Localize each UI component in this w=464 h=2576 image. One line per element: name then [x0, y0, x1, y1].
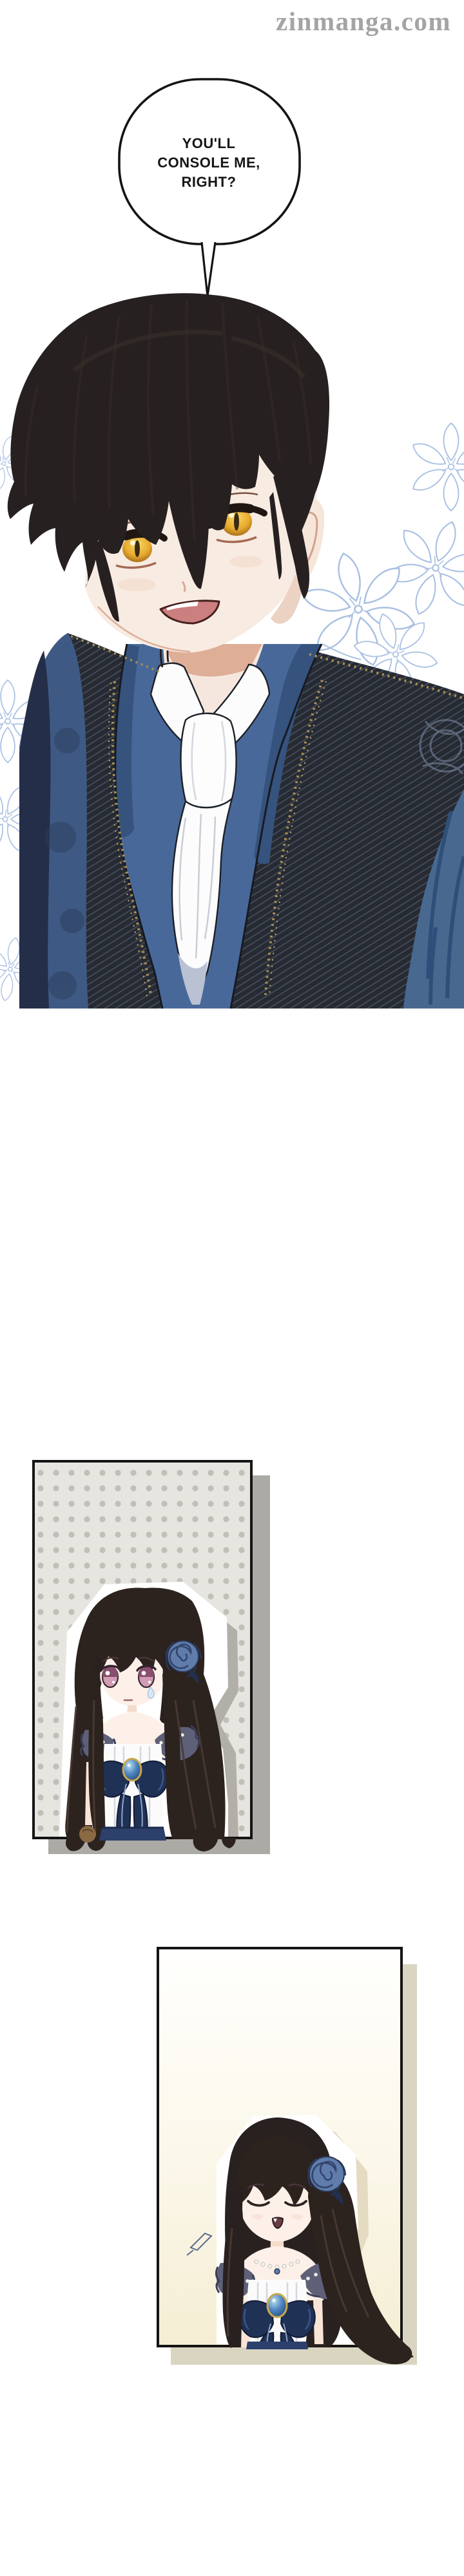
svg-text:zinmanga.com: zinmanga.com: [276, 6, 451, 36]
svg-text:RIGHT?: RIGHT?: [182, 174, 237, 190]
svg-text:YOU'LL: YOU'LL: [182, 135, 236, 151]
svg-text:CONSOLE ME,: CONSOLE ME,: [157, 155, 260, 171]
